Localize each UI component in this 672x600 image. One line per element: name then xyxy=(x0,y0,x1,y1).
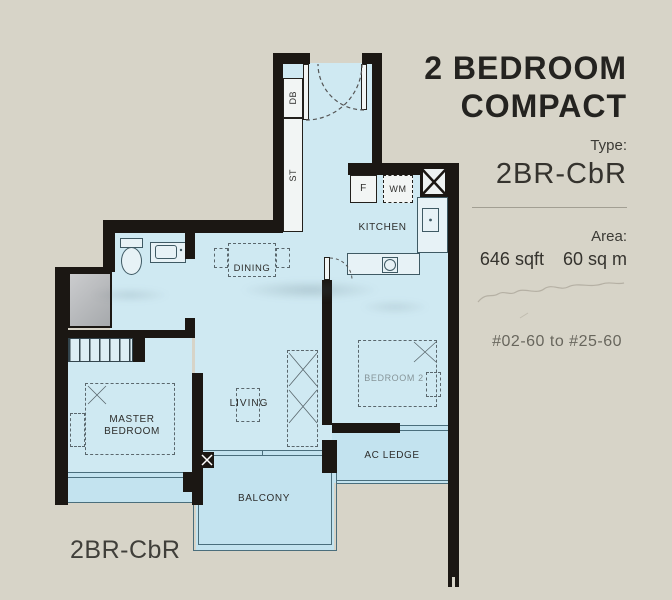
type-value: 2BR-CbR xyxy=(496,158,627,191)
panel-divider xyxy=(472,207,627,208)
st-label: ST xyxy=(288,169,298,182)
master-bedroom-label: MASTER BEDROOM xyxy=(86,414,178,438)
master-bedroom-label-line1: MASTER xyxy=(86,414,178,426)
master-window-line1 xyxy=(68,472,192,473)
wall-balcony-right xyxy=(322,440,337,473)
wall-bath-right-a xyxy=(185,233,195,259)
entry-door-leaf-left xyxy=(303,64,309,120)
area-sqft: 646 sqft xyxy=(480,249,544,269)
variant-label: 2BR-CbR xyxy=(70,536,180,565)
wall-hall-left xyxy=(273,53,283,233)
type-label: Type: xyxy=(590,137,627,154)
wall-bath-right-b xyxy=(185,318,195,338)
dining-label: DINING xyxy=(222,263,282,274)
acledge-bottom-line2 xyxy=(337,483,448,484)
wall-hall-right xyxy=(372,53,382,163)
ghost-handwriting xyxy=(478,283,624,302)
kitchen-sink xyxy=(382,257,398,273)
area-sqm: 60 sq m xyxy=(563,249,627,269)
ac-shaft-xbox xyxy=(420,166,448,197)
ac-ledge-label: AC LEDGE xyxy=(352,450,432,462)
wall-foot-a xyxy=(448,577,452,587)
wall-window-end-post xyxy=(183,472,192,492)
vanity-basin xyxy=(155,245,177,259)
wall-bath-top xyxy=(103,220,283,233)
tv-console xyxy=(287,350,318,447)
washer-box: WM xyxy=(383,175,413,203)
balcony-label: BALCONY xyxy=(224,493,304,505)
shaft-box xyxy=(68,272,112,328)
master-window-line2 xyxy=(68,477,192,478)
master-bedroom-label-line2: BEDROOM xyxy=(86,426,178,438)
db-label: DB xyxy=(288,91,298,105)
area-value: 646 sqft 60 sq m xyxy=(480,249,627,270)
washer-label: WM xyxy=(389,184,406,195)
wall-bath-bottom xyxy=(58,330,192,338)
wall-center xyxy=(322,280,332,425)
wall-bath-left xyxy=(103,222,115,272)
area-label: Area: xyxy=(591,228,627,245)
master-bedside-table xyxy=(70,413,85,447)
wall-foot-b xyxy=(455,577,459,587)
acledge-bottom-line1 xyxy=(337,480,448,481)
master-wardrobe xyxy=(68,338,133,362)
toilet-bowl xyxy=(121,247,142,275)
wall-left-exterior xyxy=(55,267,68,505)
wall-wardrobe-stub xyxy=(133,330,145,362)
acledge-louvre-line1 xyxy=(400,425,448,426)
plan-title: 2 BEDROOM COMPACT xyxy=(424,50,627,126)
fridge-box: F xyxy=(350,175,377,203)
ghost-mark xyxy=(520,313,528,318)
unit-numbers: #02-60 to #25-60 xyxy=(492,333,622,351)
kitchen-label: KITCHEN xyxy=(345,222,420,234)
plan-title-line1: 2 BEDROOM xyxy=(424,50,627,88)
fridge-label: F xyxy=(360,183,367,195)
bedroom2-door-leaf xyxy=(324,257,330,280)
living-label: LIVING xyxy=(220,398,278,410)
plan-title-line2: COMPACT xyxy=(424,88,627,126)
db-box: DB xyxy=(283,78,303,118)
wall-acledge-top xyxy=(332,423,400,433)
wall-master-living xyxy=(192,373,203,505)
st-box: ST xyxy=(283,118,303,232)
hob-box xyxy=(422,208,439,232)
balcony-column-marker xyxy=(200,452,214,468)
floor-plan-page: DB ST F WM xyxy=(0,0,672,600)
acledge-louvre-line2 xyxy=(400,430,448,431)
wall-right-long xyxy=(448,163,459,577)
entry-door-leaf-right xyxy=(361,64,367,110)
bedroom2-label: BEDROOM 2 xyxy=(358,373,430,384)
